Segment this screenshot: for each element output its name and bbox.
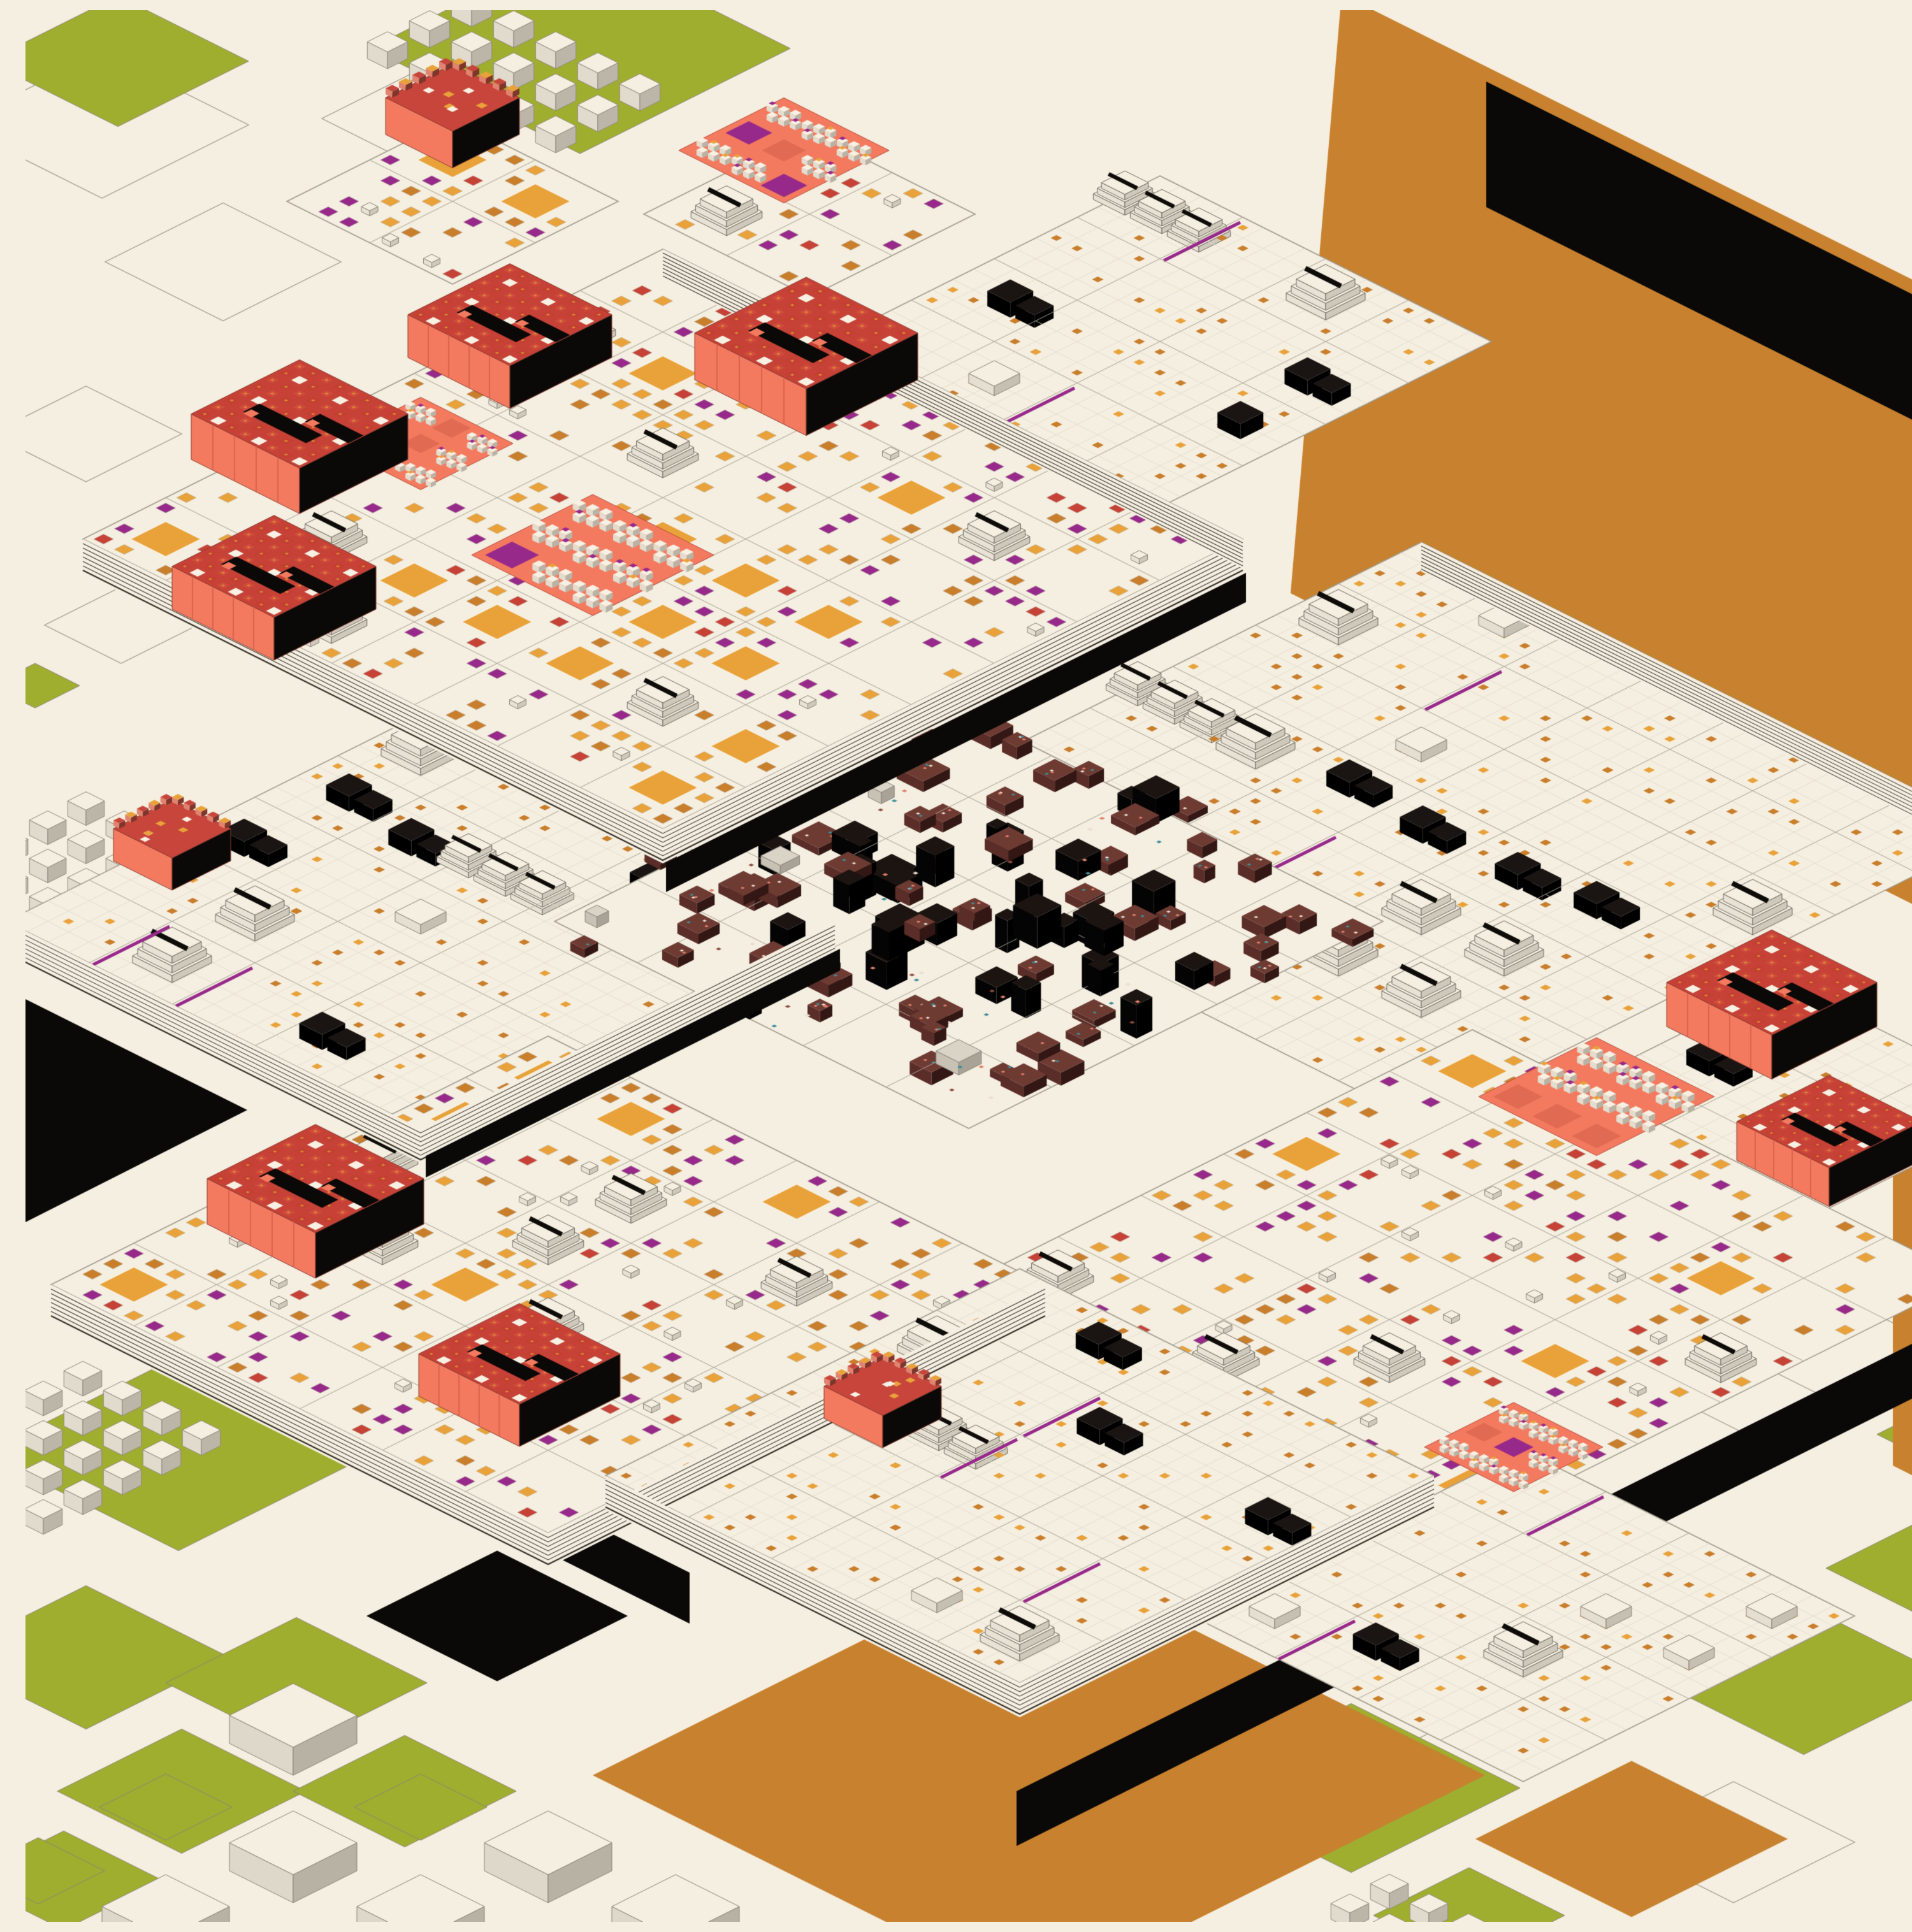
artwork-canvas [25,10,1912,1922]
generative-artwork [25,10,1912,1922]
